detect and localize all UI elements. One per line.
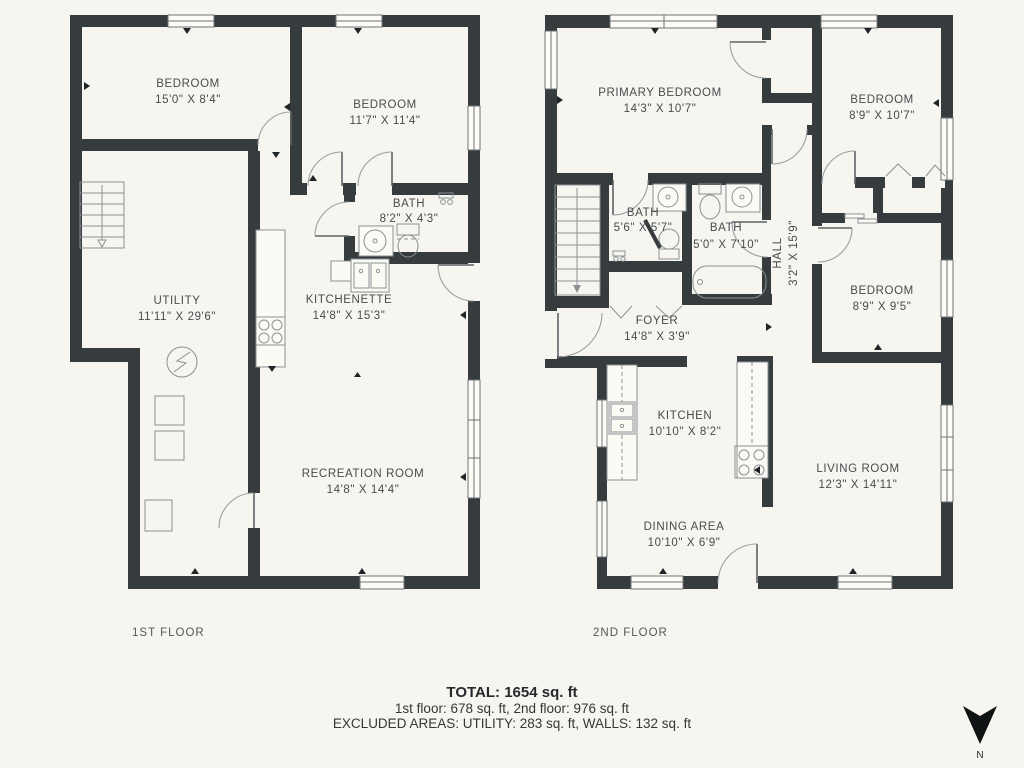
room-label-bath-hall: BATH5'0" X 7'10" <box>693 222 759 251</box>
water-heater <box>145 500 172 531</box>
floor1-plan: BEDROOM15'0" X 8'4" BEDROOM11'7" X 11'4"… <box>70 15 480 639</box>
svg-text:3'2" X 15'9": 3'2" X 15'9" <box>788 220 800 286</box>
svg-text:BEDROOM: BEDROOM <box>850 285 914 297</box>
door-primary-closet <box>730 42 766 78</box>
room-label-bedroom3: BEDROOM8'9" X 9'5" <box>850 285 914 313</box>
svg-text:8'2" X 4'3": 8'2" X 4'3" <box>380 213 439 225</box>
room-label-bedroom2: BEDROOM11'7" X 11'4" <box>349 99 420 127</box>
svg-text:10'10" X 6'9": 10'10" X 6'9" <box>648 537 721 549</box>
svg-text:5'6" X 5'7": 5'6" X 5'7" <box>614 222 673 234</box>
svg-text:14'3" X 10'7": 14'3" X 10'7" <box>624 103 697 115</box>
bath2-tub <box>693 266 766 298</box>
floor1-stairs <box>80 182 124 248</box>
area-summary: TOTAL: 1654 sq. ft 1st floor: 678 sq. ft… <box>333 684 691 731</box>
door-bedroom2-bath <box>358 152 392 186</box>
utility-equipment-box <box>155 396 184 425</box>
svg-text:BATH: BATH <box>710 222 742 234</box>
floorplan-page: BEDROOM15'0" X 8'4" BEDROOM11'7" X 11'4"… <box>0 0 1024 768</box>
svg-text:KITCHENETTE: KITCHENETTE <box>306 294 392 306</box>
kitchenette-sink <box>331 259 389 292</box>
floor1-fixtures <box>145 193 453 531</box>
svg-text:FOYER: FOYER <box>636 315 679 327</box>
svg-text:8'9" X 10'7": 8'9" X 10'7" <box>849 110 915 122</box>
svg-text:BEDROOM: BEDROOM <box>353 99 417 111</box>
room-label-living: LIVING ROOM12'3" X 14'11" <box>816 463 899 491</box>
room-label-kitchen: KITCHEN10'10" X 8'2" <box>649 410 722 438</box>
svg-text:BATH: BATH <box>627 207 659 219</box>
floorplan-canvas: BEDROOM15'0" X 8'4" BEDROOM11'7" X 11'4"… <box>0 0 1024 768</box>
svg-text:12'3" X 14'11": 12'3" X 14'11" <box>819 479 898 491</box>
kitchenette-counter <box>256 230 285 367</box>
svg-text:11'7" X 11'4": 11'7" X 11'4" <box>349 115 420 127</box>
svg-text:10'10" X 8'2": 10'10" X 8'2" <box>649 426 722 438</box>
north-arrow-icon <box>963 706 997 744</box>
compass: N <box>963 706 997 761</box>
floor2-stairs <box>555 185 600 295</box>
svg-text:8'9" X 9'5": 8'9" X 9'5" <box>853 301 912 313</box>
svg-text:UTILITY: UTILITY <box>153 295 200 307</box>
room-label-bedroom1: BEDROOM15'0" X 8'4" <box>155 78 221 106</box>
svg-text:15'0" X 8'4": 15'0" X 8'4" <box>155 94 221 106</box>
svg-text:5'0" X 7'10": 5'0" X 7'10" <box>693 239 759 251</box>
compass-label: N <box>976 750 983 761</box>
summary-total: TOTAL: 1654 sq. ft <box>446 684 577 701</box>
svg-text:14'8" X 3'9": 14'8" X 3'9" <box>624 331 690 343</box>
svg-text:BEDROOM: BEDROOM <box>156 78 220 90</box>
summary-excluded: EXCLUDED AREAS: UTILITY: 283 sq. ft, WAL… <box>333 716 691 731</box>
svg-text:PRIMARY BEDROOM: PRIMARY BEDROOM <box>598 87 722 99</box>
floor2-title: 2ND FLOOR <box>593 627 668 639</box>
bath2-sink <box>726 184 760 212</box>
utility-equipment-box <box>155 431 184 460</box>
door-front-entry <box>558 313 602 357</box>
floor1-title: 1ST FLOOR <box>132 627 205 639</box>
room-label-utility: UTILITY11'11" X 29'6" <box>138 295 216 323</box>
room-label-dining: DINING AREA10'10" X 6'9" <box>644 521 725 549</box>
bifold-closet-chevrons <box>886 164 945 176</box>
svg-text:HALL: HALL <box>772 237 784 268</box>
room-label-bath: BATH8'2" X 4'3" <box>380 198 439 225</box>
room-label-kitchenette: KITCHENETTE14'8" X 15'3" <box>306 294 392 322</box>
room-label-recreation: RECREATION ROOM14'8" X 14'4" <box>302 468 425 496</box>
summary-floors: 1st floor: 678 sq. ft, 2nd floor: 976 sq… <box>395 701 629 716</box>
svg-text:BATH: BATH <box>393 198 425 210</box>
electrical-panel-icon <box>167 347 197 377</box>
svg-text:BEDROOM: BEDROOM <box>850 94 914 106</box>
svg-text:14'8" X 15'3": 14'8" X 15'3" <box>313 310 386 322</box>
room-label-hall: HALL3'2" X 15'9" <box>772 220 800 286</box>
door-bath1 <box>315 202 349 236</box>
svg-text:14'8" X 14'4": 14'8" X 14'4" <box>327 484 400 496</box>
door-bedroom3 <box>818 228 852 262</box>
svg-text:KITCHEN: KITCHEN <box>658 410 713 422</box>
room-label-primary-bedroom: PRIMARY BEDROOM14'3" X 10'7" <box>598 87 722 115</box>
ensuite-faucet-icon <box>613 251 625 261</box>
kitchen-counter-right <box>735 362 768 478</box>
kitchen-counter-left <box>607 365 637 480</box>
room-label-bedroom-top: BEDROOM8'9" X 10'7" <box>849 94 915 122</box>
bath1-vanity <box>359 226 393 256</box>
svg-text:DINING AREA: DINING AREA <box>644 521 725 533</box>
svg-text:RECREATION ROOM: RECREATION ROOM <box>302 468 425 480</box>
room-label-foyer: FOYER14'8" X 3'9" <box>624 315 690 343</box>
floor2-plan: PRIMARY BEDROOM14'3" X 10'7" BEDROOM8'9"… <box>545 15 953 639</box>
bath2-toilet <box>699 184 721 219</box>
svg-text:11'11" X 29'6": 11'11" X 29'6" <box>138 311 216 323</box>
svg-text:LIVING ROOM: LIVING ROOM <box>816 463 899 475</box>
